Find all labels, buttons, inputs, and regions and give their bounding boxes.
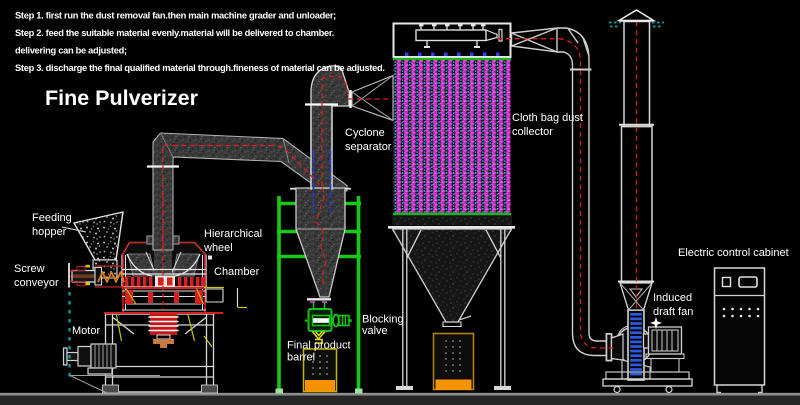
svg-text:valve: valve xyxy=(362,325,388,337)
svg-text:separator: separator xyxy=(345,141,392,153)
svg-text:Step 3. discharge the final qu: Step 3. discharge the final qualified ma… xyxy=(15,63,385,73)
svg-text:Cyclone: Cyclone xyxy=(345,127,385,139)
svg-text:Feeding: Feeding xyxy=(32,212,72,224)
svg-text:hopper: hopper xyxy=(32,226,67,238)
svg-text:Screw: Screw xyxy=(14,263,45,275)
svg-text:collector: collector xyxy=(512,126,553,138)
svg-text:barrel: barrel xyxy=(287,352,315,364)
svg-text:Blocking: Blocking xyxy=(362,314,404,326)
svg-text:Electric control cabinet: Electric control cabinet xyxy=(678,247,789,259)
svg-text:Chamber: Chamber xyxy=(214,266,260,278)
svg-text:Step 1. first run the dust rem: Step 1. first run the dust removal fan.t… xyxy=(15,11,336,21)
svg-text:Cloth bag dust: Cloth bag dust xyxy=(512,112,583,124)
svg-text:draft fan: draft fan xyxy=(653,306,693,318)
svg-text:conveyor: conveyor xyxy=(14,277,59,289)
svg-text:delivering can be adjusted;: delivering can be adjusted; xyxy=(15,46,127,56)
svg-text:Motor: Motor xyxy=(72,325,100,337)
svg-text:Induced: Induced xyxy=(653,292,692,304)
svg-text:Step 2. feed the suitable mate: Step 2. feed the suitable material evenl… xyxy=(15,28,334,38)
svg-text:Fine Pulverizer: Fine Pulverizer xyxy=(45,86,199,110)
svg-text:Hierarchical: Hierarchical xyxy=(204,228,262,240)
svg-text:Final product: Final product xyxy=(287,340,351,352)
svg-text:wheel: wheel xyxy=(203,242,233,254)
